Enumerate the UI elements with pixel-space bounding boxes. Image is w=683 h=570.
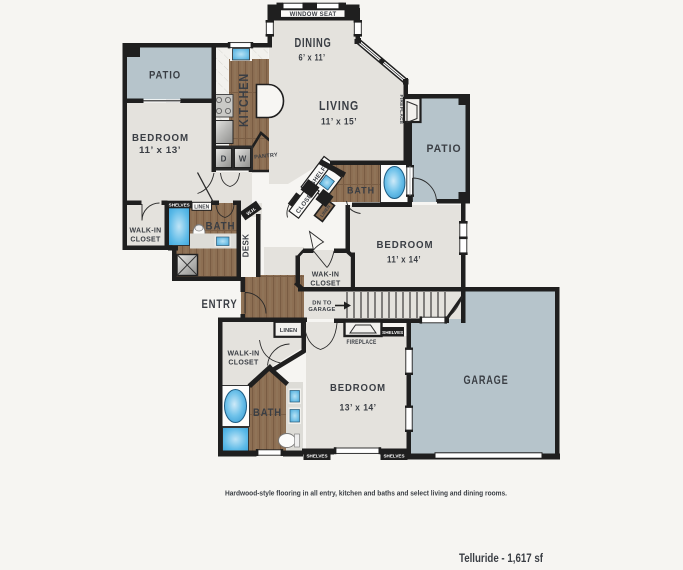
svg-text:6’ x 11’: 6’ x 11’ (299, 53, 326, 64)
svg-text:DN TO: DN TO (312, 301, 332, 307)
svg-text:BEDROOM: BEDROOM (377, 239, 434, 251)
svg-text:WALK-IN: WALK-IN (227, 351, 259, 358)
svg-text:Hardwood-style flooring in all: Hardwood-style flooring in all entry, ki… (225, 491, 507, 498)
svg-text:SHELVES: SHELVES (382, 330, 403, 335)
svg-text:11’ x 13’: 11’ x 13’ (139, 145, 181, 156)
svg-text:DESK: DESK (242, 234, 251, 257)
svg-text:FIREPLACE: FIREPLACE (398, 95, 404, 125)
svg-text:ENTRY: ENTRY (202, 297, 238, 311)
svg-text:SHELVES: SHELVES (306, 454, 327, 459)
svg-text:WALK-IN: WALK-IN (129, 228, 161, 235)
svg-text:KITCHEN: KITCHEN (237, 73, 251, 127)
svg-text:LINEN: LINEN (194, 205, 209, 211)
svg-text:SHELVES: SHELVES (169, 203, 190, 208)
svg-text:LIVING: LIVING (319, 98, 359, 113)
svg-text:FIREPLACE: FIREPLACE (347, 340, 377, 346)
svg-text:WAK-IN: WAK-IN (312, 272, 339, 279)
svg-text:CLOSET: CLOSET (130, 237, 161, 244)
svg-text:BEDROOM: BEDROOM (132, 132, 189, 144)
svg-text:SHELVES: SHELVES (383, 454, 404, 459)
svg-text:11’ x 15’: 11’ x 15’ (321, 117, 357, 128)
svg-text:WINDOW SEAT: WINDOW SEAT (290, 12, 337, 18)
svg-text:LINEN: LINEN (280, 328, 297, 334)
svg-text:BATH: BATH (347, 186, 375, 197)
svg-text:11’ x 14’: 11’ x 14’ (387, 255, 421, 266)
svg-text:PATIO: PATIO (149, 70, 181, 82)
svg-text:CLOSET: CLOSET (310, 281, 341, 288)
svg-text:BEDROOM: BEDROOM (330, 382, 386, 394)
svg-text:PATIO: PATIO (427, 143, 462, 155)
svg-text:GARAGE: GARAGE (464, 375, 509, 387)
svg-text:GARAGE: GARAGE (308, 307, 335, 313)
svg-text:D: D (221, 155, 227, 164)
svg-text:Telluride - 1,617 sf: Telluride - 1,617 sf (459, 553, 543, 565)
svg-text:BATH: BATH (206, 221, 236, 233)
svg-text:DINING: DINING (295, 35, 332, 50)
svg-text:W: W (239, 155, 247, 164)
svg-text:BATH: BATH (253, 407, 282, 419)
svg-text:CLOSET: CLOSET (228, 360, 259, 367)
svg-text:13’ x 14’: 13’ x 14’ (340, 403, 377, 414)
